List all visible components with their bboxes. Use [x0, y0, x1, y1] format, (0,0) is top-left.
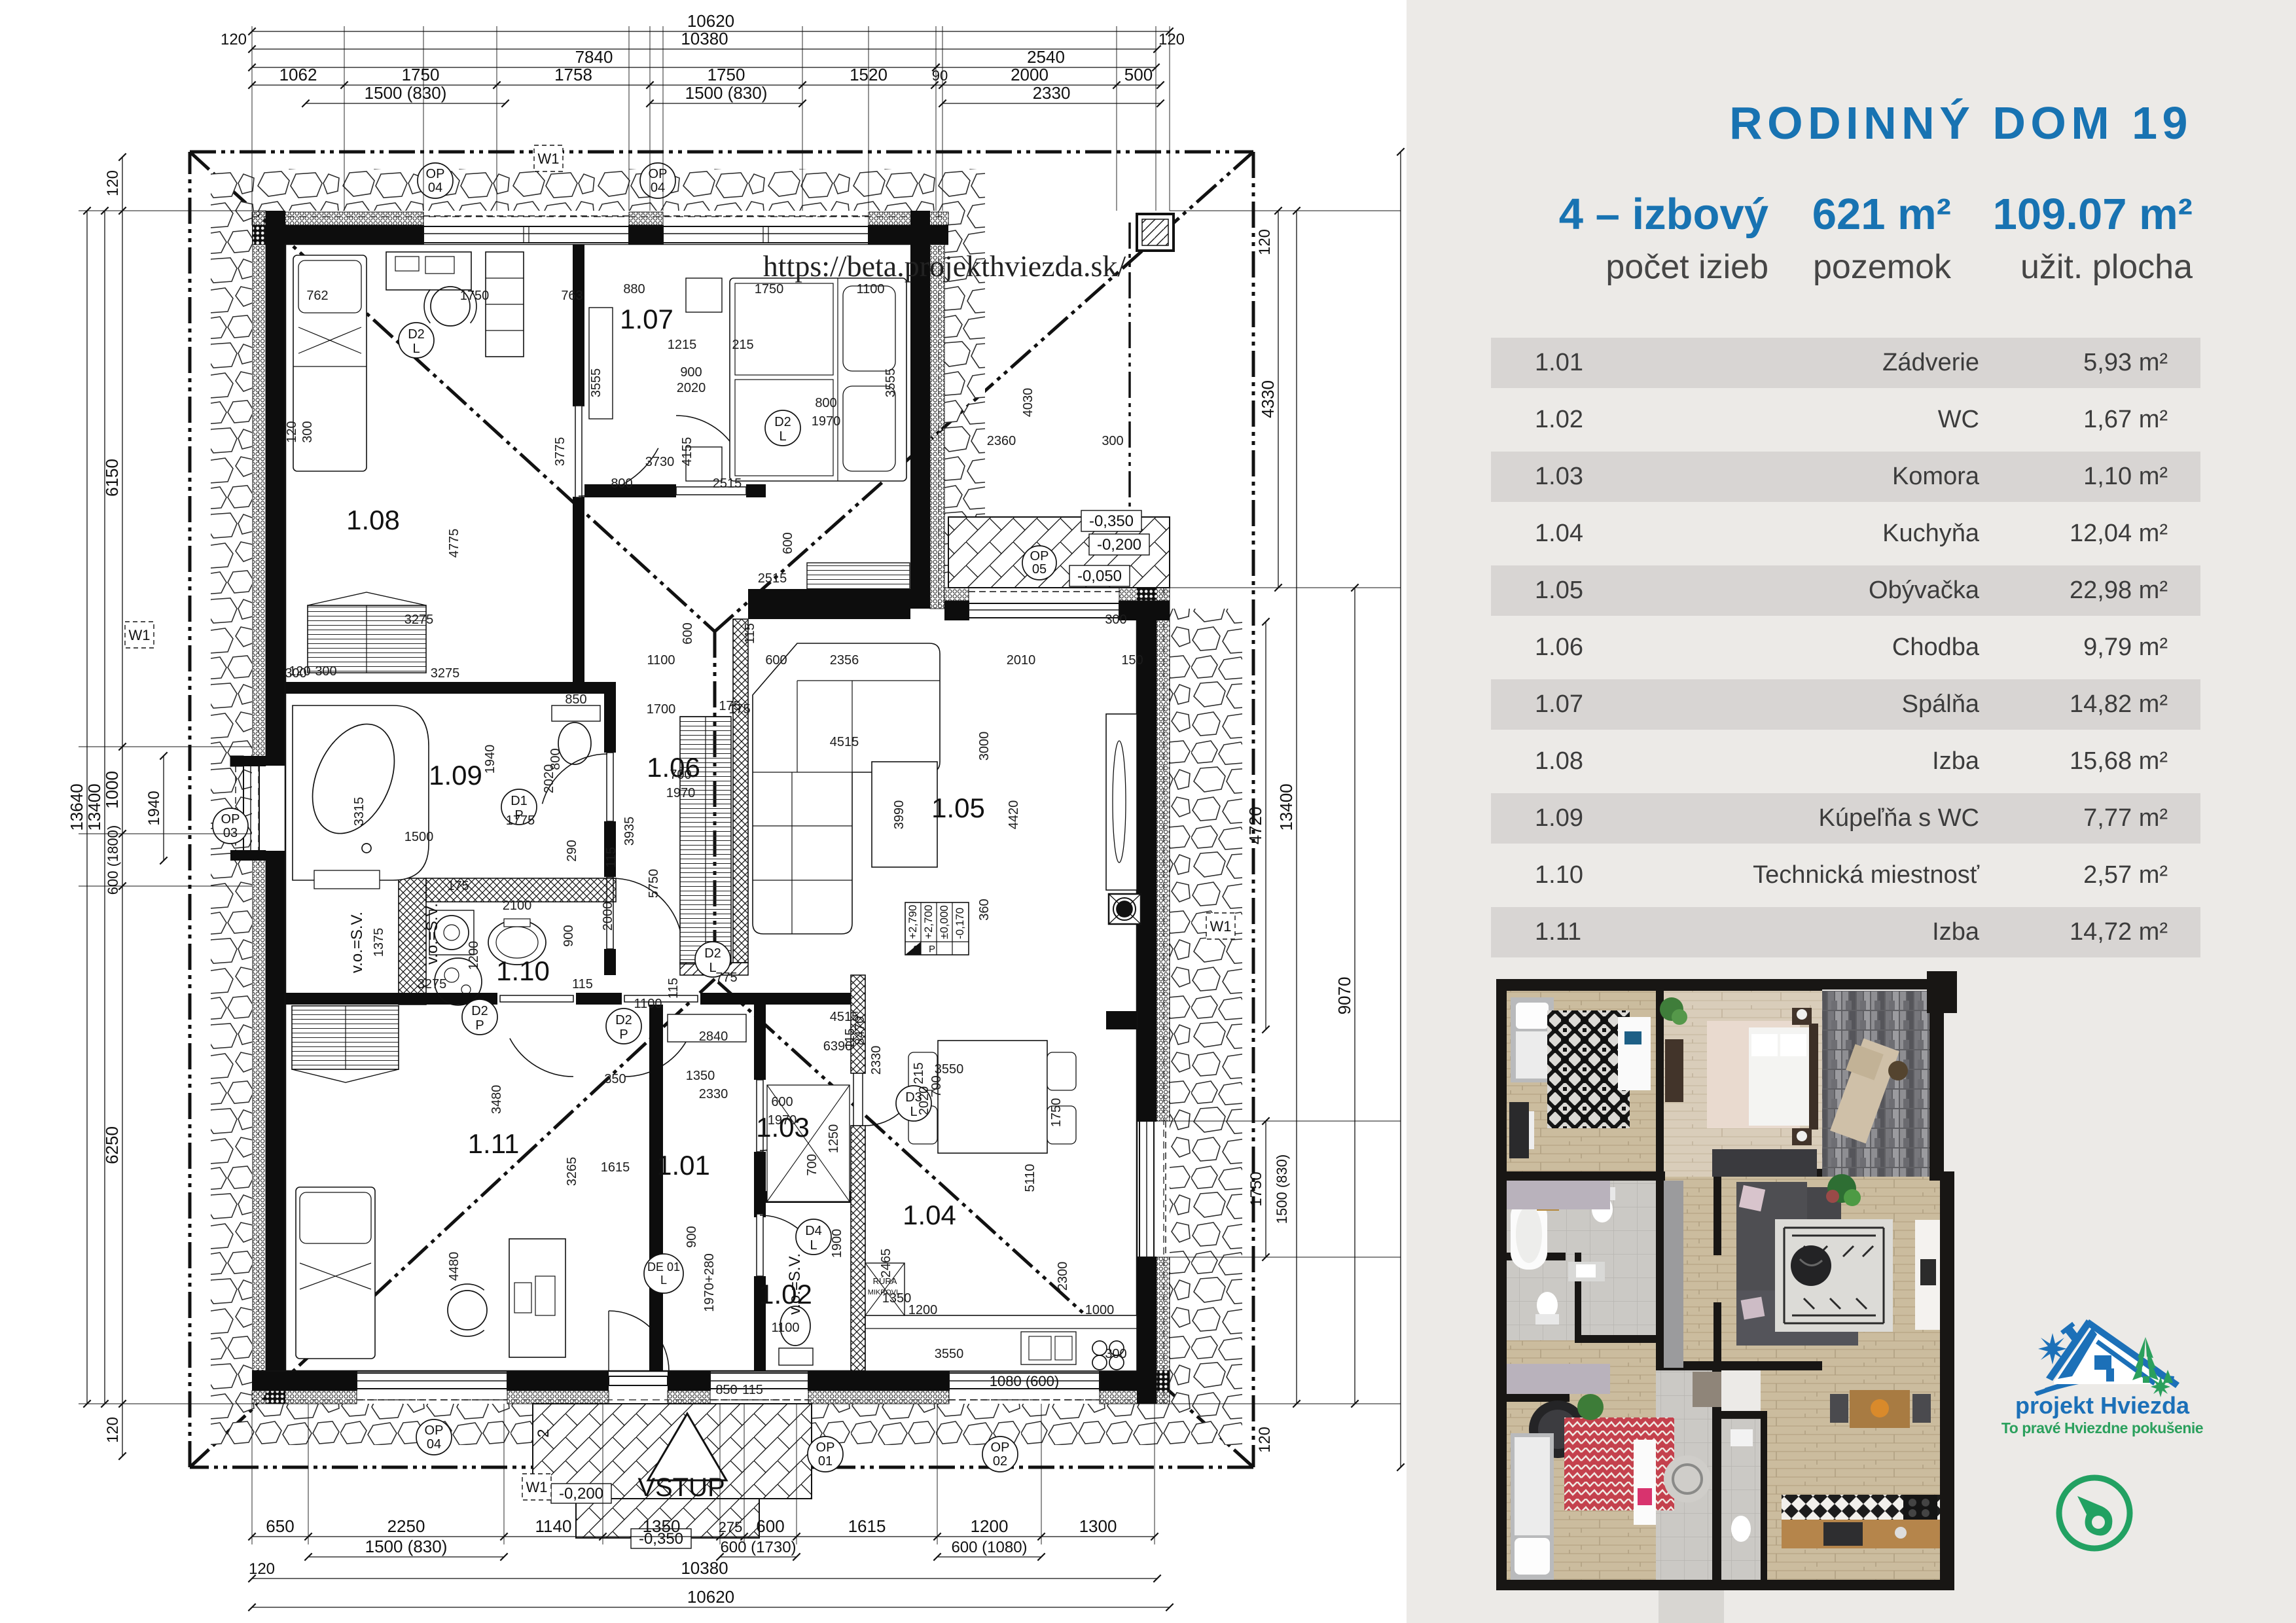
svg-text:-0,200: -0,200: [559, 1485, 603, 1503]
svg-text:290: 290: [565, 840, 579, 861]
svg-text:3550: 3550: [935, 1347, 964, 1361]
svg-text:1500 (830): 1500 (830): [685, 83, 768, 103]
svg-text:1500 (830): 1500 (830): [365, 1537, 448, 1556]
svg-text:1.01: 1.01: [656, 1150, 710, 1181]
svg-text:D4: D4: [805, 1224, 822, 1238]
svg-text:1750: 1750: [1049, 1098, 1064, 1128]
svg-text:850: 850: [565, 692, 586, 707]
svg-text:3555: 3555: [589, 368, 603, 398]
svg-text:2356: 2356: [830, 653, 859, 668]
svg-text:4720: 4720: [1246, 807, 1265, 845]
svg-text:D2: D2: [471, 1004, 488, 1018]
svg-text:1.11: 1.11: [468, 1128, 520, 1159]
svg-text:2100: 2100: [503, 899, 532, 913]
svg-text:300: 300: [300, 421, 315, 442]
svg-text:5110: 5110: [1023, 1164, 1037, 1192]
svg-text:10620: 10620: [687, 11, 734, 31]
svg-text:L: L: [779, 429, 786, 444]
svg-text:650: 650: [266, 1516, 294, 1536]
svg-text:7840: 7840: [575, 47, 613, 67]
svg-text:3265: 3265: [565, 1157, 579, 1186]
svg-text:1100: 1100: [634, 997, 662, 1011]
svg-text:DE 01: DE 01: [647, 1260, 680, 1274]
svg-text:2250: 2250: [387, 1516, 425, 1536]
svg-text:+2,790: +2,790: [906, 905, 919, 939]
svg-text:1062: 1062: [279, 65, 317, 84]
svg-text:115: 115: [843, 1028, 857, 1049]
svg-text:3000: 3000: [977, 732, 992, 761]
svg-text:120: 120: [285, 421, 299, 442]
svg-text:2840: 2840: [699, 1029, 728, 1044]
svg-text:1615: 1615: [601, 1160, 630, 1175]
svg-text:2330: 2330: [699, 1087, 728, 1101]
svg-text:150: 150: [1121, 653, 1143, 668]
svg-text:1080 (600): 1080 (600): [990, 1373, 1059, 1389]
svg-text:1970: 1970: [768, 1113, 797, 1128]
svg-text:2465: 2465: [879, 1249, 893, 1278]
svg-text:±0,000: ±0,000: [938, 905, 950, 939]
svg-text:120: 120: [1256, 1427, 1274, 1453]
svg-text:115: 115: [604, 847, 619, 868]
svg-text:600: 600: [681, 622, 695, 644]
svg-text:3730: 3730: [645, 455, 675, 469]
svg-text:2: 2: [535, 1429, 552, 1437]
svg-text:3315: 3315: [352, 797, 367, 827]
svg-text:1350: 1350: [686, 1069, 715, 1083]
svg-text:775: 775: [715, 971, 737, 985]
svg-text:OP: OP: [426, 167, 445, 181]
svg-text:300: 300: [1105, 1347, 1126, 1361]
svg-text:1100: 1100: [771, 1321, 799, 1335]
svg-text:300: 300: [1102, 434, 1123, 448]
svg-text:OP: OP: [221, 812, 240, 827]
svg-text:1940: 1940: [145, 791, 163, 825]
svg-text:360: 360: [977, 899, 992, 920]
svg-text:1940: 1940: [483, 745, 497, 774]
svg-text:04: 04: [428, 181, 442, 195]
svg-text:120: 120: [221, 31, 247, 48]
svg-text:762: 762: [306, 289, 328, 303]
svg-text:D2: D2: [704, 946, 721, 961]
svg-text:115: 115: [572, 977, 593, 991]
svg-text:1215: 1215: [668, 338, 697, 352]
svg-text:900: 900: [685, 1226, 699, 1247]
svg-text:1.05: 1.05: [931, 793, 985, 823]
svg-text:1.08: 1.08: [346, 505, 400, 535]
svg-text:1200: 1200: [908, 1303, 938, 1317]
svg-text:5750: 5750: [647, 869, 661, 899]
svg-text:120: 120: [249, 1560, 275, 1578]
svg-text:275: 275: [719, 1519, 743, 1535]
svg-text:1750: 1750: [460, 289, 490, 303]
svg-text:L: L: [910, 1105, 917, 1119]
svg-text:13640: 13640: [67, 783, 86, 830]
svg-text:2300: 2300: [1056, 1262, 1070, 1291]
svg-text:4775: 4775: [447, 529, 461, 558]
svg-text:2020: 2020: [677, 381, 706, 395]
svg-text:4330: 4330: [1258, 380, 1278, 418]
svg-text:600 (1800): 600 (1800): [105, 825, 121, 895]
svg-text:2020: 2020: [917, 1086, 931, 1116]
svg-text:P: P: [619, 1027, 628, 1042]
svg-text:1970: 1970: [666, 786, 696, 800]
svg-text:1.09: 1.09: [429, 760, 482, 791]
svg-text:600: 600: [771, 1095, 793, 1109]
svg-text:1.10: 1.10: [496, 955, 550, 986]
svg-text:W1: W1: [1210, 918, 1232, 935]
svg-text:600 (1080): 600 (1080): [951, 1539, 1027, 1556]
svg-text:600 (1730): 600 (1730): [720, 1539, 796, 1556]
svg-text:OP: OP: [816, 1440, 835, 1455]
svg-text:1200: 1200: [467, 941, 481, 971]
svg-text:D1: D1: [511, 794, 528, 808]
svg-text:VSTUP: VSTUP: [637, 1473, 725, 1502]
svg-text:2515: 2515: [758, 571, 787, 586]
svg-text:4155: 4155: [680, 437, 694, 467]
svg-text:D2: D2: [615, 1013, 632, 1027]
svg-text:1775: 1775: [506, 813, 535, 828]
svg-text:90: 90: [932, 67, 948, 84]
svg-text:13400: 13400: [1276, 783, 1296, 830]
svg-text:v.o.=S.V.: v.o.=S.V.: [348, 912, 366, 973]
svg-text:P: P: [475, 1018, 484, 1033]
svg-text:4515: 4515: [830, 735, 859, 749]
svg-text:880: 880: [623, 282, 645, 296]
svg-text:v.o.=S.V.: v.o.=S.V.: [786, 1253, 804, 1315]
svg-text:10620: 10620: [687, 1587, 734, 1607]
svg-text:700: 700: [805, 1154, 819, 1175]
svg-text:1200: 1200: [971, 1516, 1009, 1536]
svg-text:500: 500: [1124, 65, 1153, 84]
svg-text:03: 03: [223, 826, 238, 840]
svg-text:215: 215: [732, 338, 753, 352]
svg-text:2515: 2515: [713, 476, 742, 491]
svg-text:350: 350: [604, 1072, 626, 1086]
svg-text:120: 120: [104, 1417, 122, 1443]
svg-text:OP: OP: [649, 167, 668, 181]
svg-text:1375: 1375: [372, 928, 386, 957]
svg-text:1970+280: 1970+280: [702, 1253, 717, 1312]
svg-text:1700: 1700: [647, 702, 676, 717]
svg-text:3555: 3555: [884, 368, 898, 398]
svg-text:L: L: [810, 1238, 817, 1253]
svg-text:13400: 13400: [84, 783, 104, 830]
svg-text:10380: 10380: [681, 29, 728, 48]
svg-text:1350: 1350: [643, 1516, 681, 1536]
svg-text:850: 850: [715, 1383, 737, 1397]
svg-text:2330: 2330: [1033, 83, 1071, 103]
svg-text:v.o.=S.V.: v.o.=S.V.: [423, 903, 441, 965]
svg-text:600: 600: [756, 1516, 784, 1536]
svg-text:2360: 2360: [987, 434, 1016, 448]
svg-text:3275: 3275: [404, 613, 434, 627]
svg-text:1000: 1000: [102, 771, 122, 809]
svg-text:1750: 1750: [1247, 1171, 1265, 1206]
svg-text:05: 05: [1032, 562, 1047, 577]
svg-text:900: 900: [680, 365, 702, 380]
svg-text:+2,700: +2,700: [922, 905, 935, 939]
svg-text:800: 800: [815, 396, 836, 410]
svg-text:1250: 1250: [827, 1124, 841, 1154]
svg-text:6150: 6150: [102, 459, 122, 497]
svg-text:3480: 3480: [490, 1085, 504, 1115]
svg-text:1500 (830): 1500 (830): [1274, 1154, 1290, 1224]
svg-text:04: 04: [427, 1437, 441, 1452]
svg-text:1900: 1900: [830, 1229, 844, 1258]
svg-text:-0,350: -0,350: [1089, 512, 1134, 530]
svg-text:1758: 1758: [554, 65, 592, 84]
svg-text:4480: 4480: [447, 1252, 461, 1281]
svg-text:1100: 1100: [647, 653, 675, 668]
svg-text:120: 120: [1158, 31, 1185, 48]
svg-text:2540: 2540: [1027, 47, 1065, 67]
svg-text:215: 215: [912, 1062, 926, 1084]
svg-text:02: 02: [993, 1454, 1007, 1469]
svg-text:3935: 3935: [622, 817, 637, 846]
svg-text:D2: D2: [408, 327, 425, 342]
svg-text:115: 115: [743, 623, 757, 644]
svg-text:115: 115: [742, 1383, 763, 1397]
svg-text:1750: 1750: [755, 282, 784, 296]
svg-text:W1: W1: [526, 1479, 548, 1495]
svg-text:2010: 2010: [1007, 653, 1036, 668]
svg-text:2330: 2330: [869, 1046, 884, 1075]
svg-text:10380: 10380: [681, 1558, 728, 1578]
svg-text:763: 763: [561, 289, 583, 303]
svg-text:-0,050: -0,050: [1077, 567, 1122, 585]
svg-text:9070: 9070: [1335, 977, 1354, 1015]
svg-text:OP: OP: [991, 1440, 1010, 1455]
svg-text:4030: 4030: [1021, 388, 1035, 418]
svg-text:W1: W1: [538, 151, 560, 167]
svg-text:700: 700: [670, 768, 691, 782]
svg-text:115: 115: [666, 978, 681, 999]
svg-text:1615: 1615: [848, 1516, 886, 1536]
svg-text:P: P: [929, 944, 935, 955]
svg-text:3775: 3775: [553, 437, 567, 467]
svg-text:300: 300: [285, 666, 306, 681]
svg-text:900: 900: [562, 925, 576, 946]
svg-text:175: 175: [719, 699, 740, 713]
svg-text:1.04: 1.04: [903, 1200, 956, 1230]
svg-text:1.07: 1.07: [620, 304, 673, 334]
svg-text:700: 700: [929, 1075, 944, 1097]
svg-text:1140: 1140: [535, 1516, 572, 1536]
svg-text:1.02: 1.02: [759, 1279, 812, 1310]
svg-text:1300: 1300: [1079, 1516, 1117, 1536]
svg-text:1350: 1350: [882, 1291, 912, 1306]
svg-text:3990: 3990: [892, 800, 906, 830]
svg-text:4420: 4420: [1007, 800, 1021, 830]
svg-text:W1: W1: [129, 627, 151, 643]
svg-text:OP: OP: [425, 1423, 444, 1438]
svg-text:600: 600: [765, 653, 787, 668]
svg-text:120: 120: [104, 170, 122, 196]
svg-text:3275: 3275: [418, 977, 447, 991]
svg-text:175: 175: [447, 879, 469, 893]
svg-text:OP: OP: [1030, 549, 1049, 563]
svg-text:6250: 6250: [102, 1126, 122, 1164]
svg-text:3550: 3550: [935, 1062, 964, 1077]
svg-text:800: 800: [548, 748, 563, 770]
svg-text:300: 300: [1105, 613, 1126, 627]
svg-text:2000: 2000: [1011, 65, 1049, 84]
svg-text:-0,170: -0,170: [954, 908, 966, 939]
svg-text:120: 120: [1256, 229, 1274, 255]
svg-text:1000: 1000: [1085, 1303, 1115, 1317]
svg-text:1750: 1750: [402, 65, 440, 84]
svg-text:1500 (830): 1500 (830): [365, 83, 447, 103]
svg-text:01: 01: [818, 1454, 833, 1469]
svg-text:1500: 1500: [404, 830, 434, 844]
svg-text:https://beta.projekthviezda.sk: https://beta.projekthviezda.sk/: [763, 249, 1126, 283]
svg-text:D2: D2: [774, 415, 791, 429]
svg-text:L: L: [660, 1274, 667, 1287]
svg-text:S: S: [913, 944, 920, 955]
svg-text:1970: 1970: [812, 414, 841, 429]
svg-text:600: 600: [781, 532, 795, 554]
svg-text:1750: 1750: [708, 65, 745, 84]
svg-text:300: 300: [315, 664, 336, 679]
svg-text:-0,200: -0,200: [1097, 536, 1141, 554]
svg-text:2000: 2000: [601, 902, 615, 931]
svg-text:800: 800: [611, 476, 632, 491]
svg-text:L: L: [412, 342, 420, 356]
svg-text:1100: 1100: [856, 282, 884, 296]
svg-text:3275: 3275: [431, 666, 460, 681]
